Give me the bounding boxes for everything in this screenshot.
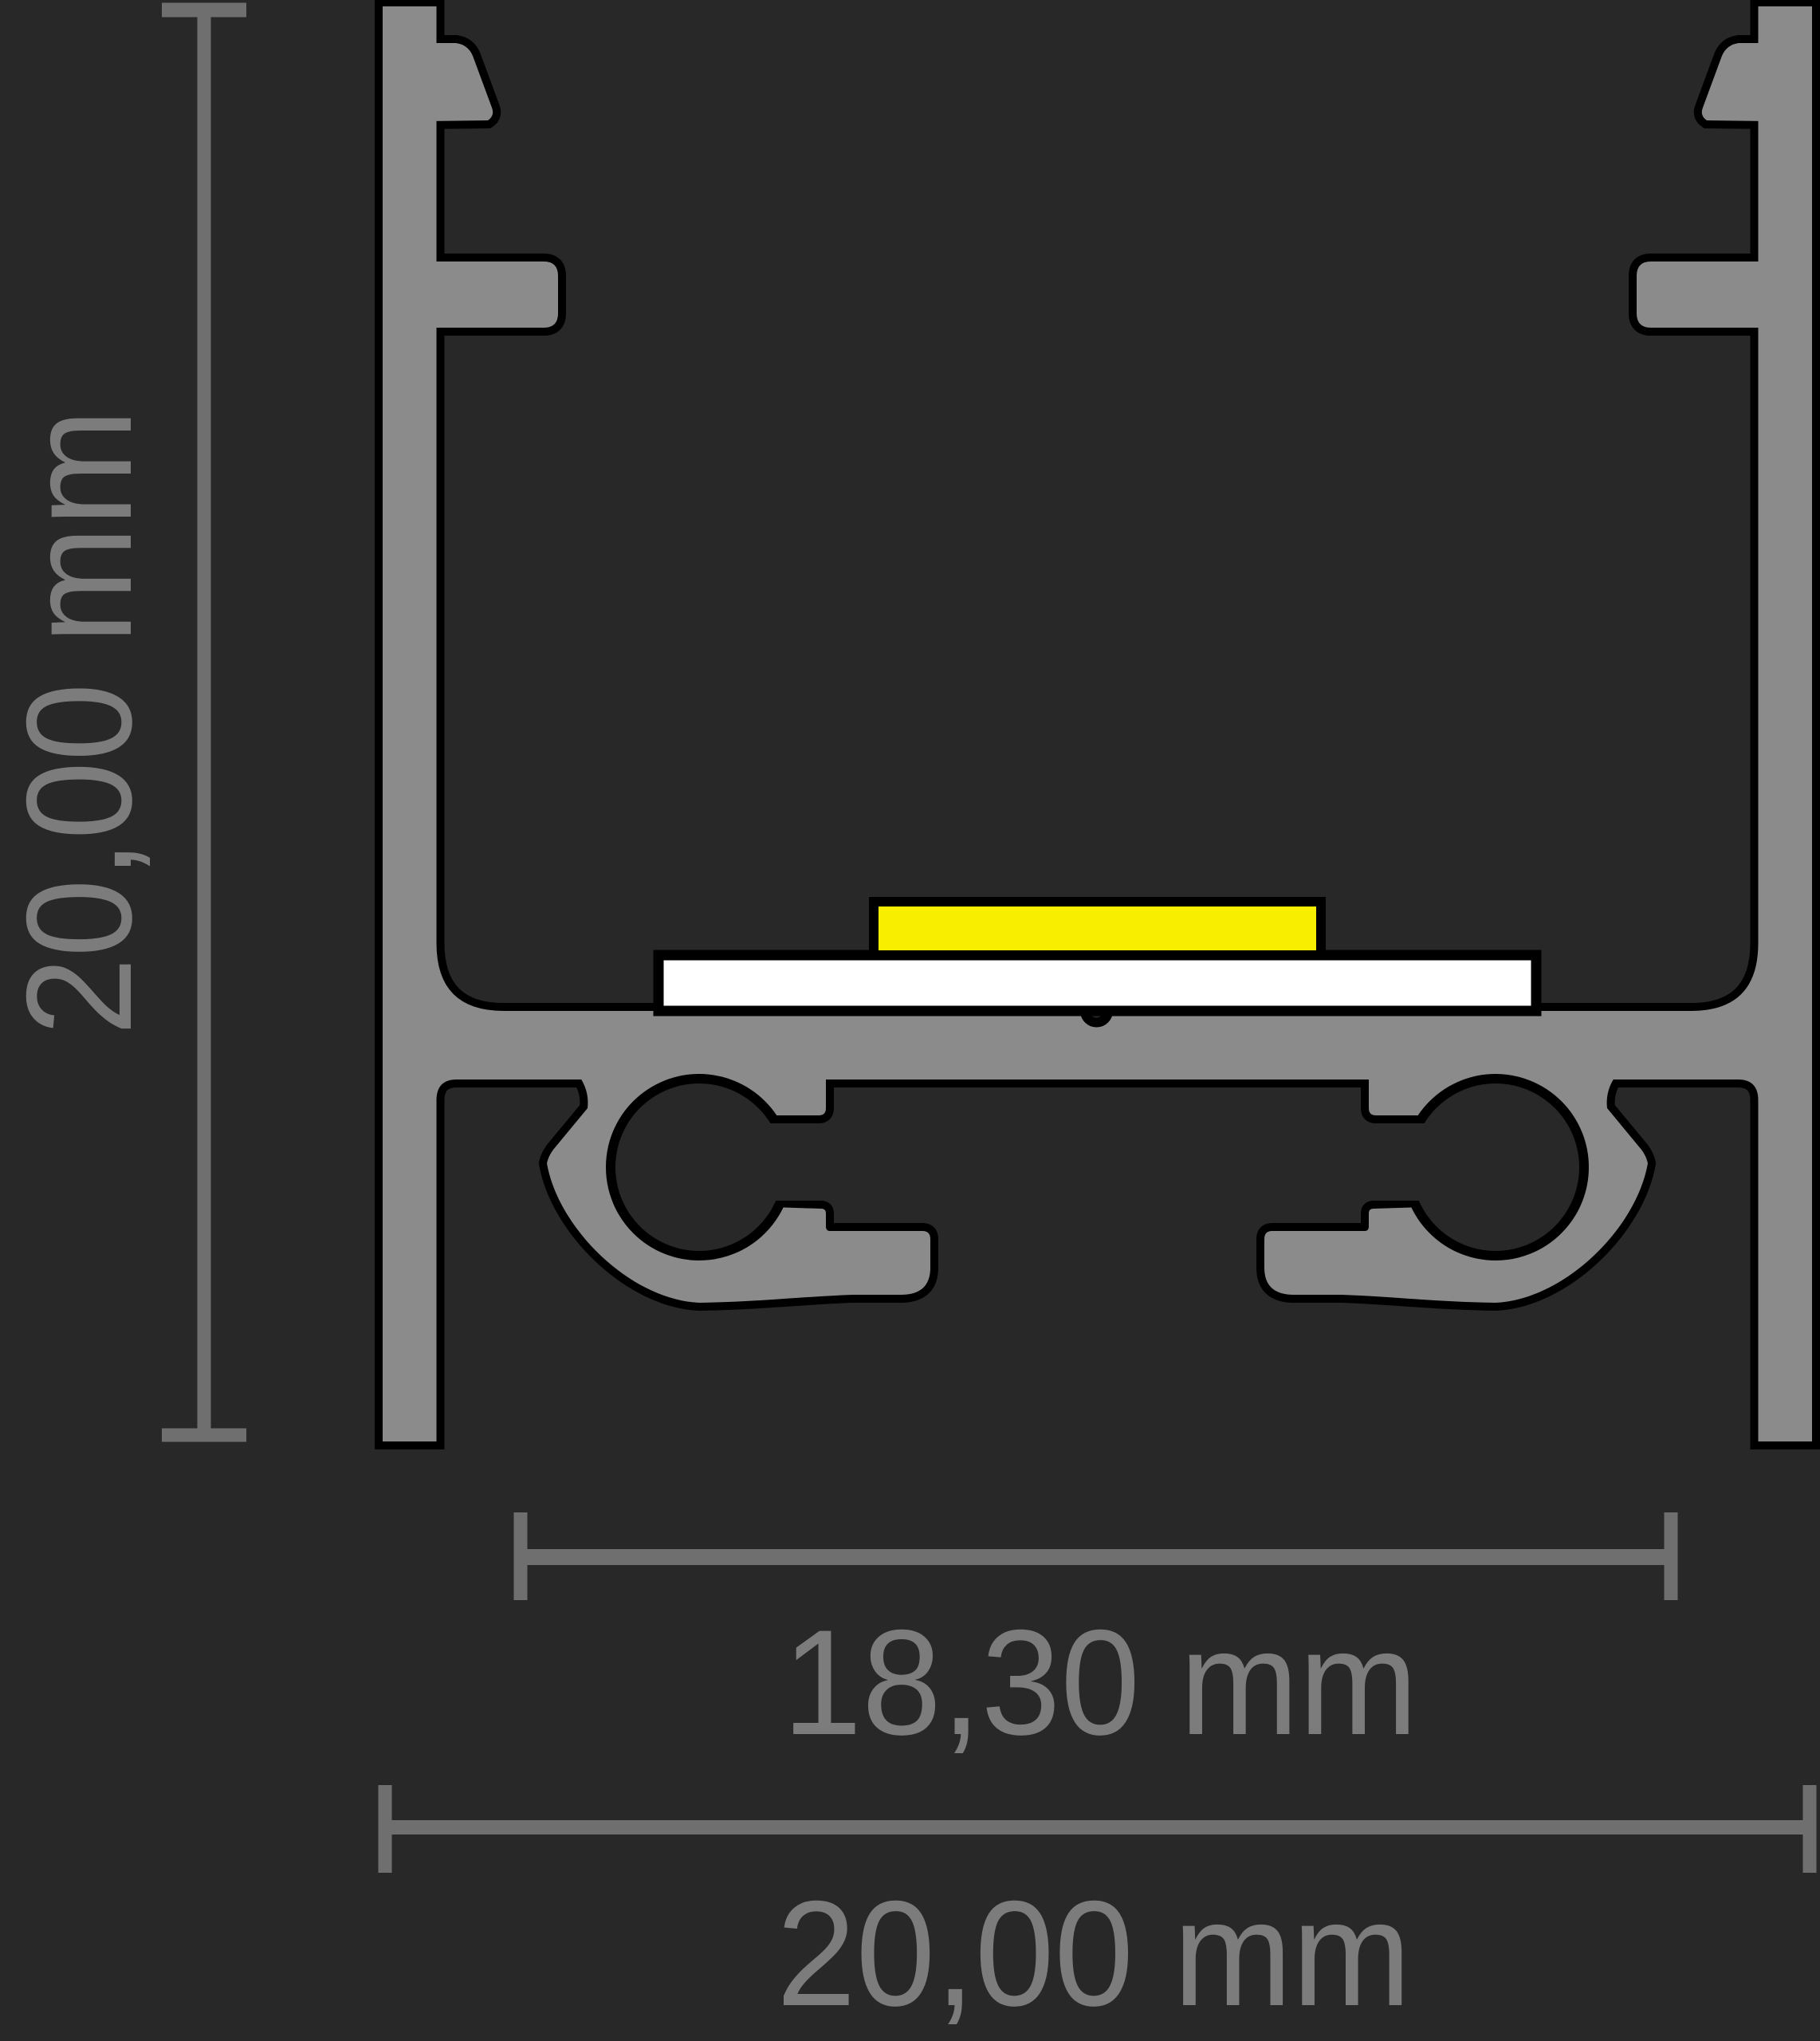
svg-text:20,00 mm: 20,00 mm	[0, 409, 163, 1036]
svg-text:18,30 mm: 18,30 mm	[783, 1599, 1418, 1766]
svg-text:20,00 mm: 20,00 mm	[776, 1870, 1411, 2037]
